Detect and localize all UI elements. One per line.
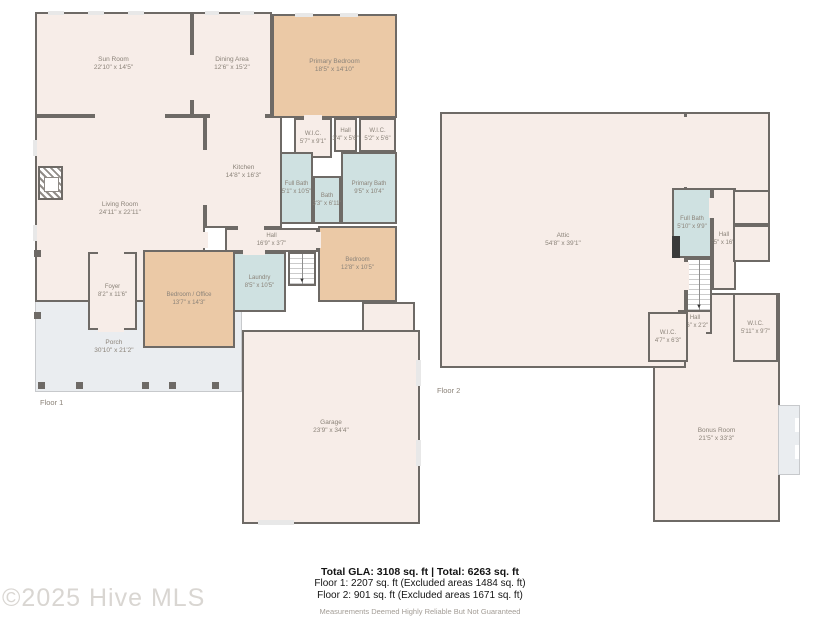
room-bedroom-office: Bedroom / Office 13'7" x 14'3" <box>143 250 235 348</box>
room-laundry: Laundry 8'5" x 10'5" <box>233 252 286 312</box>
room-dims: 8'2" x 11'6" <box>98 291 127 299</box>
window <box>48 11 64 15</box>
door-opening <box>688 331 706 337</box>
room-name: Full Bath <box>677 215 707 223</box>
summary-total: Total GLA: 3108 sq. ft | Total: 6263 sq.… <box>0 566 840 578</box>
room-name: Primary Bedroom <box>309 58 360 66</box>
room-label: W.I.C. 5'11" x 9'7" <box>741 320 770 336</box>
window <box>795 418 799 432</box>
room-name: Laundry <box>245 274 275 282</box>
window <box>33 140 37 156</box>
room-wic-right: W.I.C. 5'11" x 9'7" <box>733 293 778 362</box>
floor2-label: Floor 2 <box>437 386 460 395</box>
window <box>416 440 421 466</box>
porch-post <box>76 382 83 389</box>
porch-post <box>34 250 41 257</box>
room-primary-bedroom: Primary Bedroom 18'5" x 14'10" <box>272 14 397 118</box>
room-name: Bonus Room <box>698 427 736 435</box>
door-opening <box>98 327 124 332</box>
door-opening <box>315 232 321 248</box>
room-name: Porch <box>94 339 133 347</box>
stairs-floor1: ▼ <box>288 252 316 286</box>
window <box>88 11 104 15</box>
room-label: W.I.C. 4'7" x 6'3" <box>655 329 681 345</box>
room-dims: 5'1" x 10'5" <box>282 188 312 196</box>
room-label: Primary Bedroom 18'5" x 14'10" <box>309 58 360 74</box>
fireplace-icon <box>38 166 63 200</box>
room-label: Foyer 8'2" x 11'6" <box>98 283 127 299</box>
room-wic-b: W.I.C. 5'2" x 5'6" <box>359 118 396 152</box>
room-dims: 5'7" x 9'1" <box>300 138 326 146</box>
room-label: Bath 3'3" x 6'11" <box>312 192 341 208</box>
room-wic-left: W.I.C. 4'7" x 6'3" <box>648 312 688 362</box>
room-dims: 24'11" x 22'11" <box>99 209 141 217</box>
room-bath: Bath 3'3" x 6'11" <box>313 176 341 224</box>
room-dims: 14'8" x 16'3" <box>226 172 262 180</box>
room-dims: 12'6" x 15'2" <box>214 64 250 72</box>
bath-step <box>672 236 680 258</box>
porch-post <box>212 382 219 389</box>
room-name: Garage <box>313 419 349 427</box>
mls-watermark: ©2025 Hive MLS <box>2 584 205 612</box>
room-label: Bedroom / Office 13'7" x 14'3" <box>167 291 212 307</box>
door-opening <box>238 225 264 231</box>
room-name: Kitchen <box>226 164 262 172</box>
room-name: Bedroom / Office <box>167 291 212 299</box>
window <box>205 11 219 15</box>
porch-post <box>142 382 149 389</box>
room-kitchen: Kitchen 14'8" x 16'3" <box>205 116 282 228</box>
room-dims: 8'5" x 10'5" <box>245 282 275 290</box>
door-opening <box>202 150 208 205</box>
room-name: W.I.C. <box>364 127 390 135</box>
room-name: W.I.C. <box>655 329 681 337</box>
door-opening <box>202 232 208 248</box>
room-label: Porch 30'10" x 21'2" <box>94 339 133 355</box>
door-opening <box>709 198 715 218</box>
room-label: Primary Bath 9'5" x 10'4" <box>352 180 387 196</box>
porch-post <box>34 312 41 319</box>
door-opening <box>304 115 322 120</box>
bonus-deck <box>778 405 800 475</box>
door-opening <box>95 112 165 118</box>
room-name: Attic <box>545 232 581 240</box>
window <box>128 11 144 15</box>
room-label: W.I.C. 5'7" x 9'1" <box>300 130 326 146</box>
porch-post <box>38 382 45 389</box>
room-name: W.I.C. <box>741 320 770 328</box>
stairs-floor2: ▼ <box>686 258 712 312</box>
door-opening <box>189 55 195 100</box>
room-dims: 21'5" x 33'3" <box>698 435 736 443</box>
room-dims: 9'5" x 10'4" <box>352 188 387 196</box>
room-name: Primary Bath <box>352 180 387 188</box>
room-label: Kitchen 14'8" x 16'3" <box>226 164 262 180</box>
door-opening <box>683 262 689 290</box>
wall-merge <box>681 117 689 187</box>
room-primary-bath: Primary Bath 9'5" x 10'4" <box>341 152 397 224</box>
room-closet <box>733 190 770 225</box>
room-garage: Garage 23'9" x 34'4" <box>242 330 420 524</box>
room-name: Dining Area <box>214 56 250 64</box>
room-name: Full Bath <box>282 180 312 188</box>
room-dims: 30'10" x 21'2" <box>94 347 133 355</box>
room-name: Bath <box>312 192 341 200</box>
room-dims: 16'9" x 3'7" <box>257 240 287 248</box>
door-opening <box>98 249 124 255</box>
door-opening <box>210 113 265 119</box>
room-dims: 5'2" x 5'6" <box>364 135 390 143</box>
room-label: Hall 3'4" x 5'6" <box>332 127 358 143</box>
room-dims: 54'8" x 39'1" <box>545 240 581 248</box>
room-dims: 22'10" x 14'5" <box>94 64 133 72</box>
room-label: Dining Area 12'6" x 15'2" <box>214 56 250 72</box>
room-label: Full Bath 5'10" x 9'9" <box>677 215 707 231</box>
floorplan-canvas: Porch 30'10" x 21'2" Sun Room 22'10" x 1… <box>0 0 840 630</box>
door-opening <box>243 249 265 255</box>
room-dims: 18'5" x 14'10" <box>309 66 360 74</box>
window <box>340 13 358 17</box>
room-hall-closet: Hall 3'4" x 5'6" <box>334 118 357 152</box>
room-label: Hall 16'9" x 3'7" <box>257 232 287 248</box>
fireplace-firebox <box>44 177 59 192</box>
floor1-label: Floor 1 <box>40 398 63 407</box>
room-dims: 13'7" x 14'3" <box>167 299 212 307</box>
room-bedroom: Bedroom 12'8" x 10'5" <box>318 226 397 302</box>
window <box>240 11 254 15</box>
window <box>416 360 421 386</box>
window <box>795 445 799 459</box>
window <box>33 225 37 241</box>
room-dims: 5'11" x 9'7" <box>741 328 770 336</box>
room-label: Full Bath 5'1" x 10'5" <box>282 180 312 196</box>
room-name: W.I.C. <box>300 130 326 138</box>
room-name: Bedroom <box>341 256 374 264</box>
room-label: W.I.C. 5'2" x 5'6" <box>364 127 390 143</box>
room-full-bath: Full Bath 5'1" x 10'5" <box>280 152 313 224</box>
room-name: Foyer <box>98 283 127 291</box>
room-dims: 3'4" x 5'6" <box>332 135 358 143</box>
room-foyer: Foyer 8'2" x 11'6" <box>88 252 137 330</box>
porch-post <box>169 382 176 389</box>
room-sun-room: Sun Room 22'10" x 14'5" <box>35 12 192 116</box>
room-label: Sun Room 22'10" x 14'5" <box>94 56 133 72</box>
window <box>295 13 313 17</box>
room-label: Laundry 8'5" x 10'5" <box>245 274 275 290</box>
room-label: Bedroom 12'8" x 10'5" <box>341 256 374 272</box>
room-name: Hall <box>257 232 287 240</box>
room-attic-extension <box>685 112 770 192</box>
room-dims: 12'8" x 10'5" <box>341 264 374 272</box>
room-label: Living Room 24'11" x 22'11" <box>99 201 141 217</box>
room-dining-area: Dining Area 12'6" x 15'2" <box>192 12 272 116</box>
stairs-rail <box>699 260 700 310</box>
room-hall: Hall 16'9" x 3'7" <box>225 228 318 252</box>
room-label: Attic 54'8" x 39'1" <box>545 232 581 248</box>
room-name: Sun Room <box>94 56 133 64</box>
stairs-down-arrow: ▼ <box>299 278 305 284</box>
room-dims: 4'7" x 6'3" <box>655 337 681 345</box>
room-dims: 23'9" x 34'4" <box>313 427 349 435</box>
room-label: Garage 23'9" x 34'4" <box>313 419 349 435</box>
room-closet <box>733 225 770 262</box>
room-label: Bonus Room 21'5" x 33'3" <box>698 427 736 443</box>
garage-door <box>258 520 294 525</box>
room-name: Living Room <box>99 201 141 209</box>
room-dims: 5'10" x 9'9" <box>677 223 707 231</box>
room-name: Hall <box>332 127 358 135</box>
room-dims: 3'3" x 6'11" <box>312 200 341 208</box>
